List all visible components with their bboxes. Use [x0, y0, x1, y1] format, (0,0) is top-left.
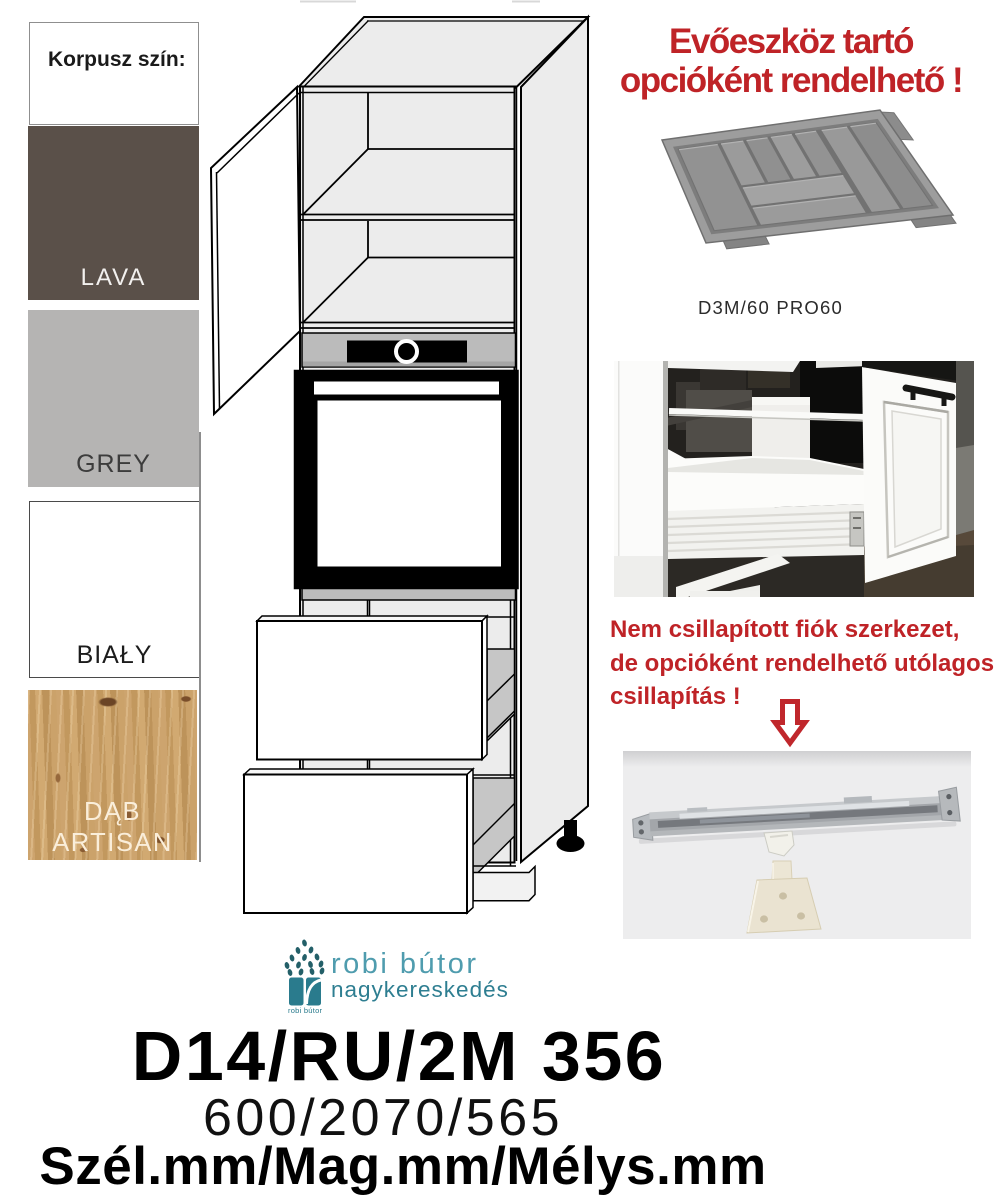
svg-text:robi bútor: robi bútor	[288, 1006, 323, 1015]
